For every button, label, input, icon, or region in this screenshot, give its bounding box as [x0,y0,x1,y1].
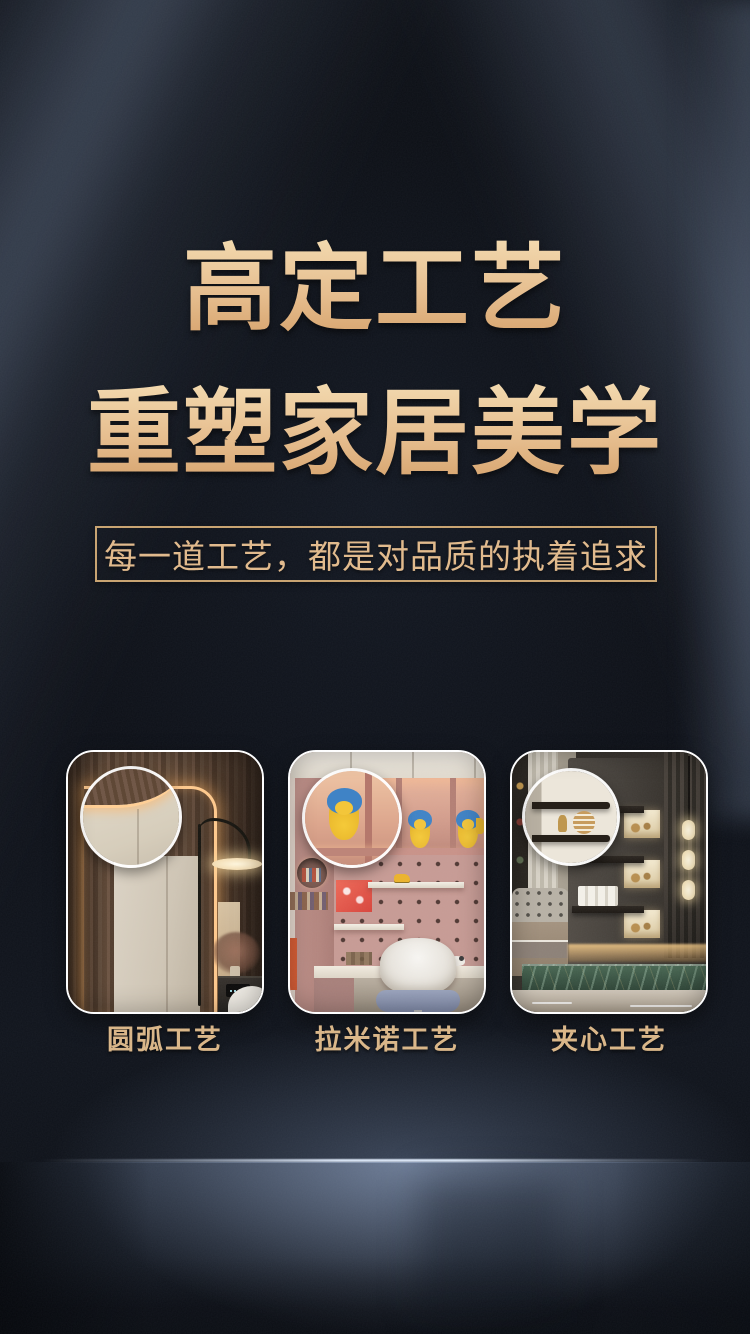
green-marble-base [522,964,708,992]
white-wall-shelf [334,924,404,930]
door-seam [166,856,168,1012]
subtitle-box: 每一道工艺，都是对品质的执着追求 [95,526,657,582]
pendant-bulb [682,820,695,840]
gray-platform [512,940,570,958]
desk-drawer-unit [314,978,354,1012]
niche-books [302,868,321,882]
cream-wardrobe-door [114,856,200,1012]
magnifier-circle-arc [80,766,182,868]
craft-card-label-sandwich: 夹心工艺 [510,1018,708,1057]
lit-display-niche [624,910,660,938]
magnifier-pikachu [329,794,359,840]
magnifier-shelf-slab [532,835,609,841]
magnifier-shelf-slab [532,802,609,808]
orange-accent-strip [290,938,297,990]
floor-reflection-shadow [420,1180,560,1310]
hero-title-line1: 高定工艺 [0,238,750,341]
craft-card-sandwich[interactable] [510,750,708,1014]
magnifier-circle-sandwich [522,768,620,866]
patterned-sofa [512,888,570,924]
floating-shelf-slab [572,906,644,913]
pikachu-figurine [410,814,430,848]
magnifier-gold-striped-ball [573,811,595,833]
lit-display-niche [624,860,660,888]
floor-lamp-ring-light [212,858,262,870]
pendant-cable [688,756,690,822]
hero-title-line2: 重塑家居美学 [0,382,750,485]
magnifier-shelf-backdrop [525,771,617,863]
under-cabinet-light [568,944,708,962]
floor-seam [630,1005,692,1007]
craft-card-label-arc: 圆弧工艺 [66,1018,264,1057]
craft-card-arc[interactable] [66,750,264,1014]
magnifier-gold-decor [558,815,567,832]
white-vase-set [578,886,618,906]
lounge-floor [512,990,706,1012]
chair-post [414,1010,422,1014]
book-spines [290,892,328,910]
magnifier-cubby-shelf [305,848,399,856]
desk-stationery [346,952,372,965]
craft-card-label-lamello: 拉米诺工艺 [288,1018,486,1057]
craft-card-labels: 圆弧工艺 拉米诺工艺 夹心工艺 [66,1018,708,1057]
floor-highlight-line [40,1159,710,1162]
pendant-bulb [682,880,695,900]
toy-car [394,874,410,882]
pendant-bulb [682,850,695,870]
floor-lamp-pole [198,824,201,1006]
lit-display-niche [624,810,660,838]
chair-backrest [380,938,456,994]
cubby-divider [450,778,456,850]
promo-page: 高定工艺 重塑家居美学 每一道工艺，都是对品质的执着追求 [0,0,750,1334]
subtitle-text: 每一道工艺，都是对品质的执着追求 [104,530,648,578]
craft-cards-row [66,750,708,1014]
floor-glow [0,1162,750,1334]
red-gift-box [336,880,372,912]
floor-seam [532,1002,572,1004]
magnifier-circle-lamello [302,768,402,868]
chair-cushion [376,990,460,1012]
pikachu-figurine [458,814,478,848]
magnifier-door-seam [137,809,139,865]
craft-card-lamello[interactable] [288,750,486,1014]
white-wall-shelf [368,882,464,888]
figurine-tail [476,818,485,834]
